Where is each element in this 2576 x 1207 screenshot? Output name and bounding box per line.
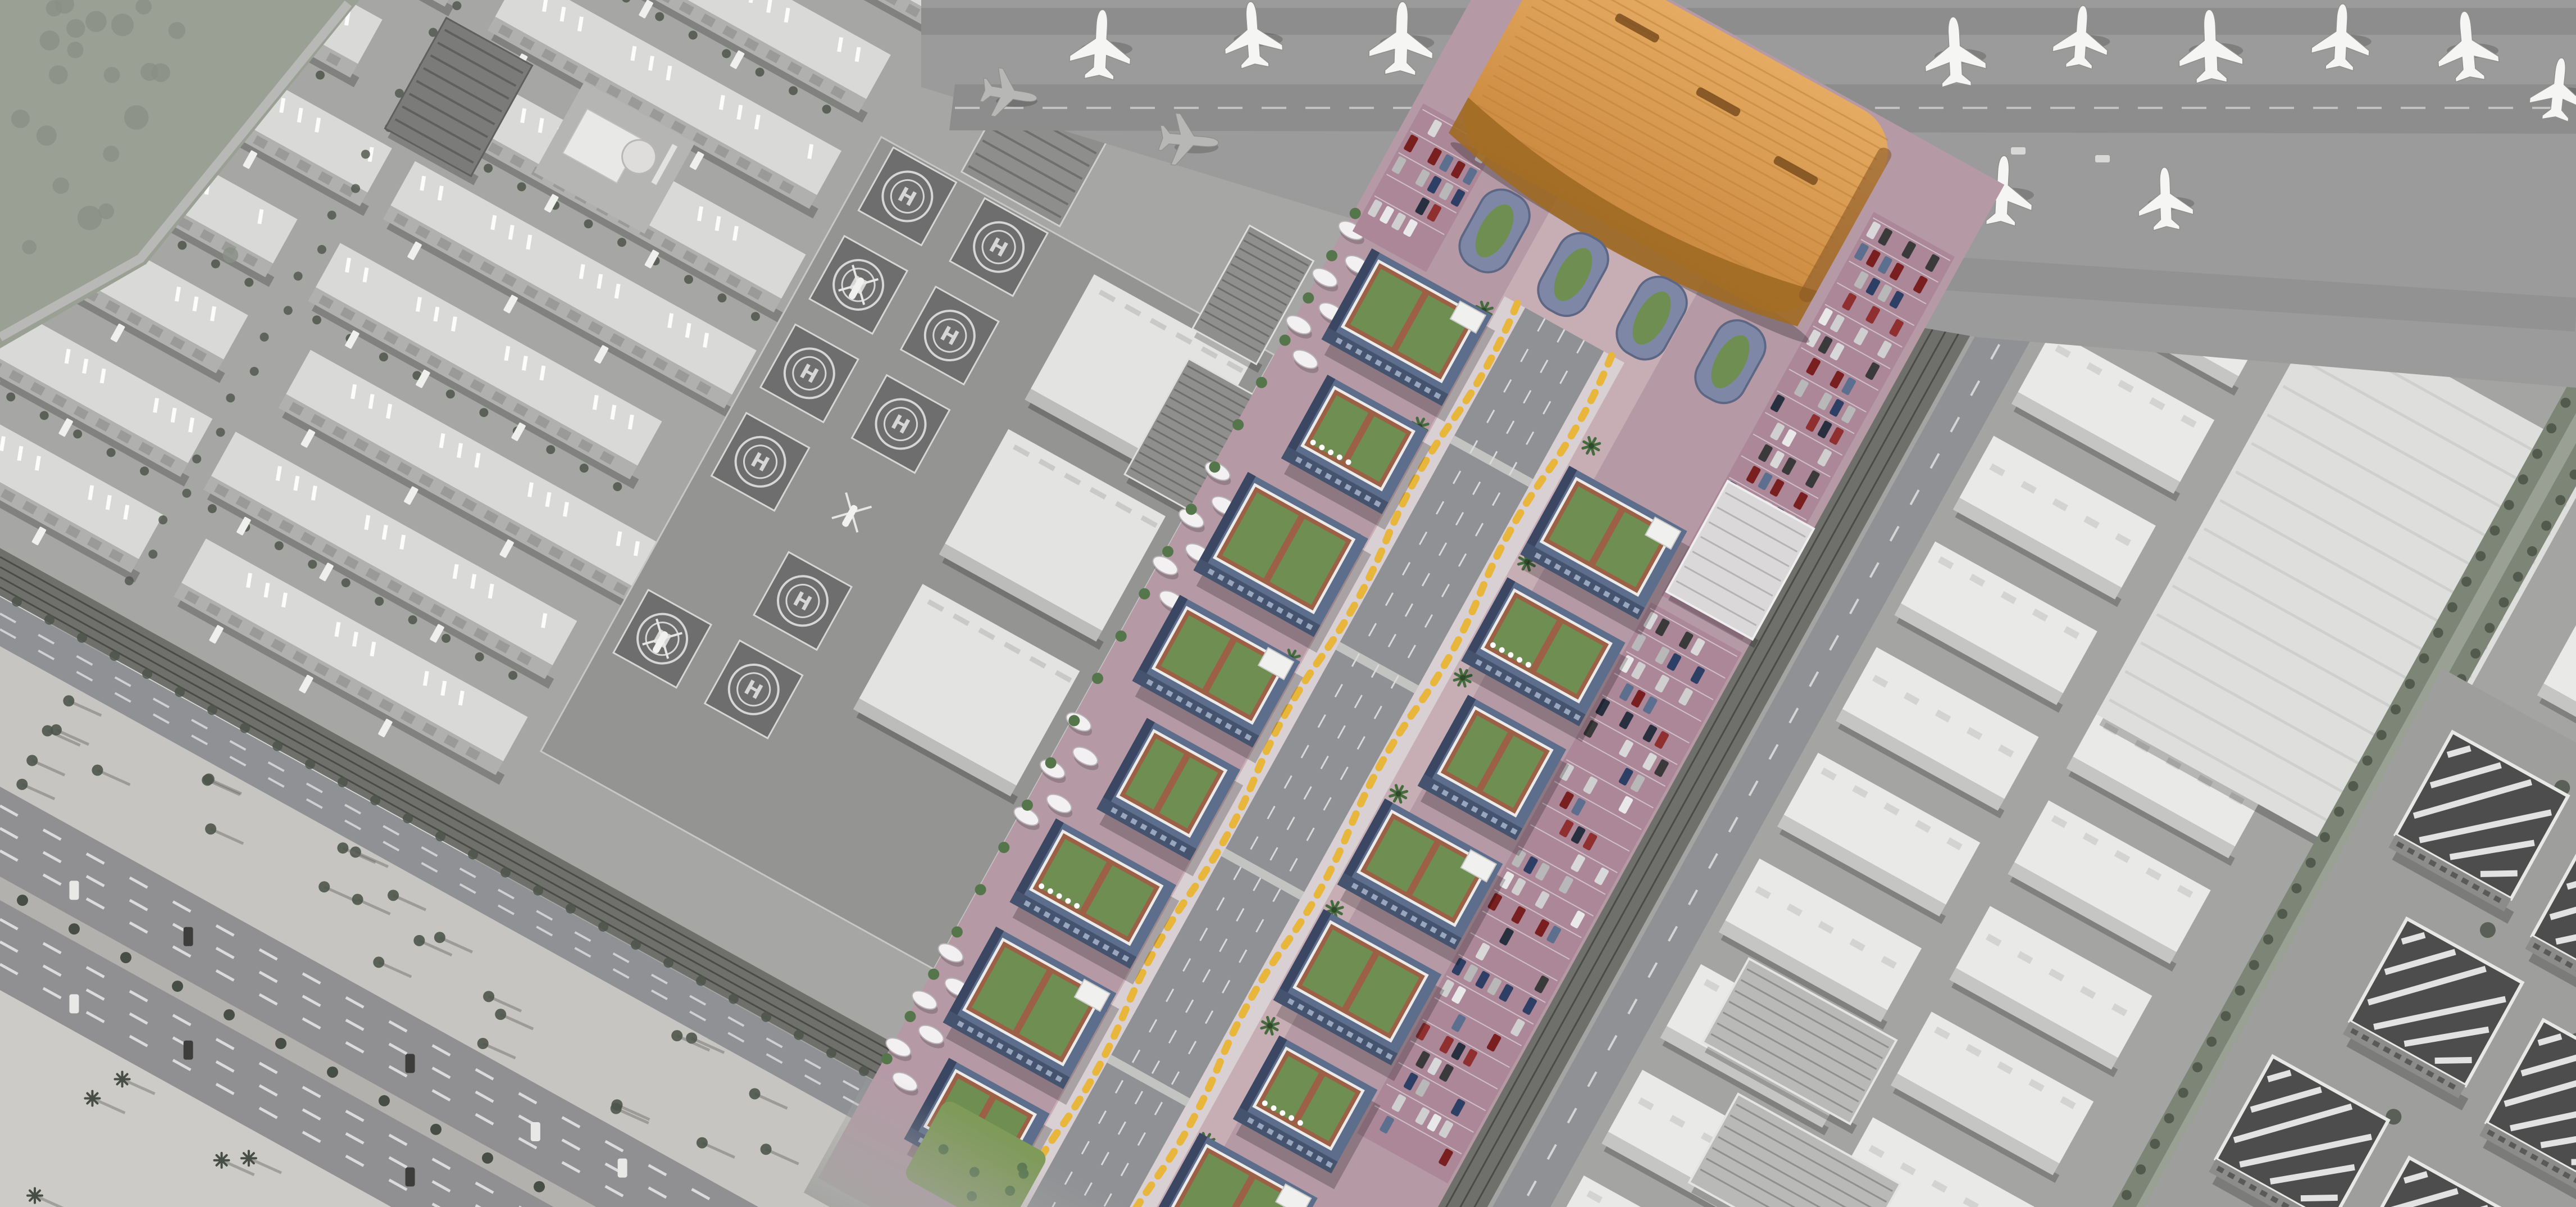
tree-icon [663, 958, 673, 968]
tree-icon [373, 956, 384, 968]
tree-icon [16, 779, 28, 790]
tree-icon [435, 831, 445, 841]
tree-icon [92, 765, 103, 776]
tree-icon [305, 759, 315, 769]
tree-icon [533, 886, 543, 896]
scrub-patch [169, 22, 185, 39]
scrub-patch [67, 42, 83, 58]
scrub-patch [85, 11, 107, 32]
tree-icon [761, 1144, 772, 1155]
car-icon [531, 1122, 540, 1141]
tree-icon [477, 1038, 489, 1049]
palm-icon [115, 1072, 130, 1087]
scrub-patch [222, 247, 238, 263]
tree-icon [44, 615, 54, 625]
car-icon [406, 1054, 415, 1073]
palm-icon [69, 923, 80, 934]
palm-icon [215, 1153, 229, 1168]
palm-icon [482, 1152, 493, 1164]
scrub-patch [49, 65, 68, 84]
tree-icon [859, 1066, 869, 1076]
scrub-patch [78, 206, 102, 230]
car-icon [184, 927, 193, 946]
taxiway [921, 8, 2576, 35]
tree-icon [77, 633, 87, 643]
palm-icon [275, 1038, 286, 1049]
tree-icon [63, 695, 74, 706]
tree-icon [761, 1012, 771, 1022]
scrub-patch [37, 125, 57, 146]
scrub-patch [40, 30, 60, 51]
palm-icon [17, 895, 28, 906]
tree-icon [403, 813, 413, 823]
tree-icon [434, 932, 445, 943]
tree-icon [352, 894, 363, 905]
ground-vehicle [2011, 147, 2026, 155]
palm-icon [242, 1151, 256, 1165]
palm-icon [85, 1091, 99, 1106]
tree-icon [142, 669, 152, 679]
tree-icon [110, 651, 120, 661]
tree-icon [12, 597, 22, 607]
tree-icon [611, 1103, 622, 1114]
tree-icon [749, 1088, 761, 1099]
car-icon [69, 881, 79, 900]
tree-icon [729, 994, 739, 1004]
scrub-patch [53, 178, 69, 194]
tree-icon [500, 868, 511, 878]
tree-icon [175, 687, 185, 697]
tree-icon [26, 755, 38, 766]
tree-icon [207, 705, 217, 715]
palm-icon [172, 981, 183, 992]
masterplan-render: HHHHHHHHHH [0, 0, 2576, 1207]
tree-icon [566, 904, 576, 914]
ground-vehicle [2095, 155, 2110, 162]
scrub-patch [103, 146, 119, 162]
tree-icon [696, 975, 706, 986]
tree-icon [272, 741, 283, 751]
tree-icon [483, 991, 494, 1002]
tree-icon [51, 724, 62, 736]
tree-icon [631, 940, 641, 950]
scrub-patch [124, 105, 149, 130]
tree-icon [495, 1009, 506, 1020]
tree-icon [598, 922, 608, 932]
tree-icon [468, 849, 478, 859]
car-icon [69, 994, 79, 1013]
scrub-patch [22, 240, 37, 255]
scrub-patch [66, 19, 85, 38]
palm-icon [120, 952, 131, 963]
scrub-patch [140, 63, 158, 81]
scrub-patch [111, 13, 134, 36]
tree-icon [205, 823, 216, 834]
palm-icon [534, 1181, 545, 1192]
tree-icon [338, 777, 348, 787]
tree-icon [697, 1137, 708, 1149]
tree-icon [202, 774, 213, 786]
palm-icon [28, 1188, 42, 1203]
tree-icon [826, 1048, 836, 1058]
palm-icon [224, 1009, 235, 1020]
tree-icon [240, 723, 250, 733]
tree-icon [370, 795, 380, 805]
car-icon [618, 1159, 627, 1178]
palm-icon [327, 1067, 338, 1078]
tree-icon [794, 1030, 804, 1040]
tree-icon [318, 881, 330, 892]
tree-icon [388, 890, 399, 901]
car-icon [184, 1041, 193, 1060]
palm-icon [379, 1095, 390, 1106]
tree-icon [337, 842, 348, 854]
scrub-patch [104, 67, 120, 83]
tree-icon [413, 935, 425, 946]
tree-icon [671, 1030, 682, 1041]
scrub-patch [11, 110, 30, 128]
car-icon [406, 1168, 415, 1187]
palm-icon [430, 1124, 442, 1135]
